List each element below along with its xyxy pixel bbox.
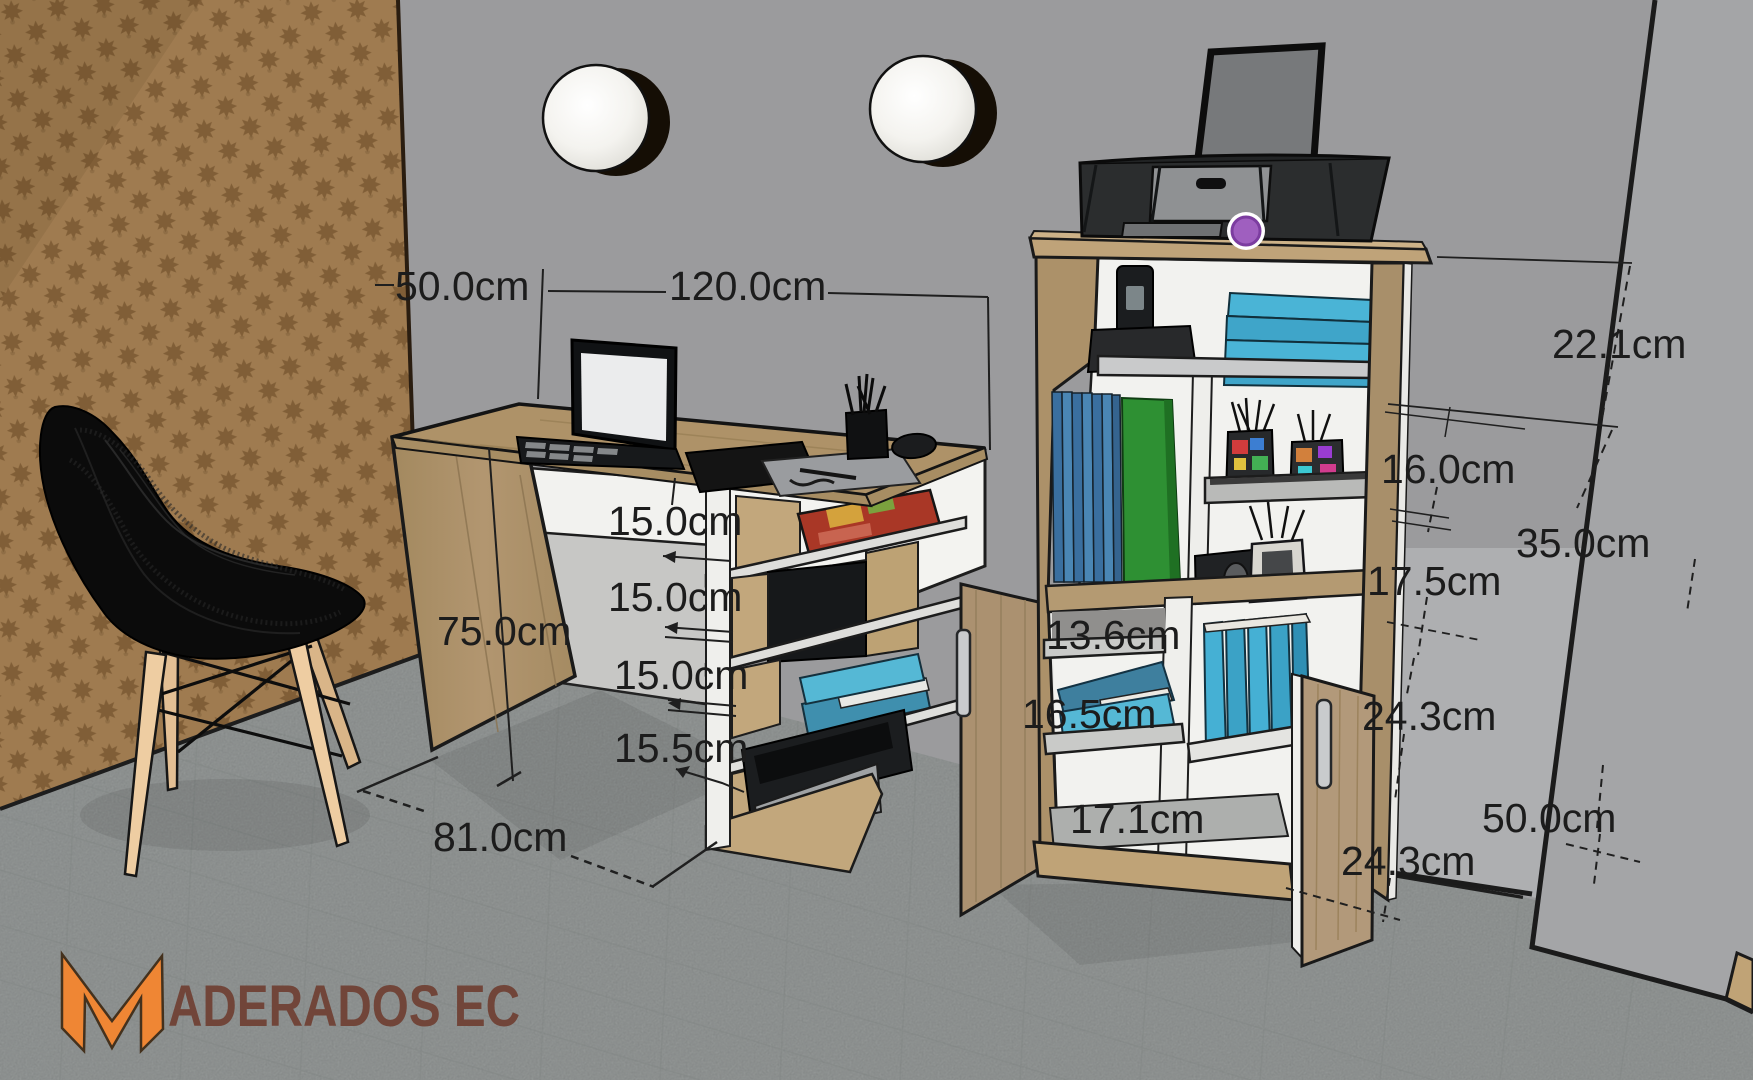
svg-text:15.0cm: 15.0cm (608, 574, 742, 620)
svg-text:15.5cm: 15.5cm (614, 725, 748, 771)
svg-text:15.0cm: 15.0cm (608, 498, 742, 544)
svg-text:13.6cm: 13.6cm (1046, 612, 1180, 658)
svg-text:16.5cm: 16.5cm (1022, 691, 1156, 737)
svg-text:35.0cm: 35.0cm (1516, 520, 1650, 566)
svg-text:17.1cm: 17.1cm (1070, 796, 1204, 842)
svg-text:50.0cm: 50.0cm (395, 263, 529, 309)
svg-text:ADERADOS EC: ADERADOS EC (168, 974, 520, 1039)
svg-text:22.1cm: 22.1cm (1552, 321, 1686, 367)
svg-text:24.3cm: 24.3cm (1341, 838, 1475, 884)
svg-text:120.0cm: 120.0cm (669, 263, 826, 309)
svg-text:15.0cm: 15.0cm (614, 652, 748, 698)
svg-text:17.5cm: 17.5cm (1367, 558, 1501, 604)
svg-text:24.3cm: 24.3cm (1362, 693, 1496, 739)
svg-text:75.0cm: 75.0cm (437, 608, 571, 654)
svg-text:16.0cm: 16.0cm (1381, 446, 1515, 492)
svg-text:81.0cm: 81.0cm (433, 814, 567, 860)
svg-text:50.0cm: 50.0cm (1482, 795, 1616, 841)
